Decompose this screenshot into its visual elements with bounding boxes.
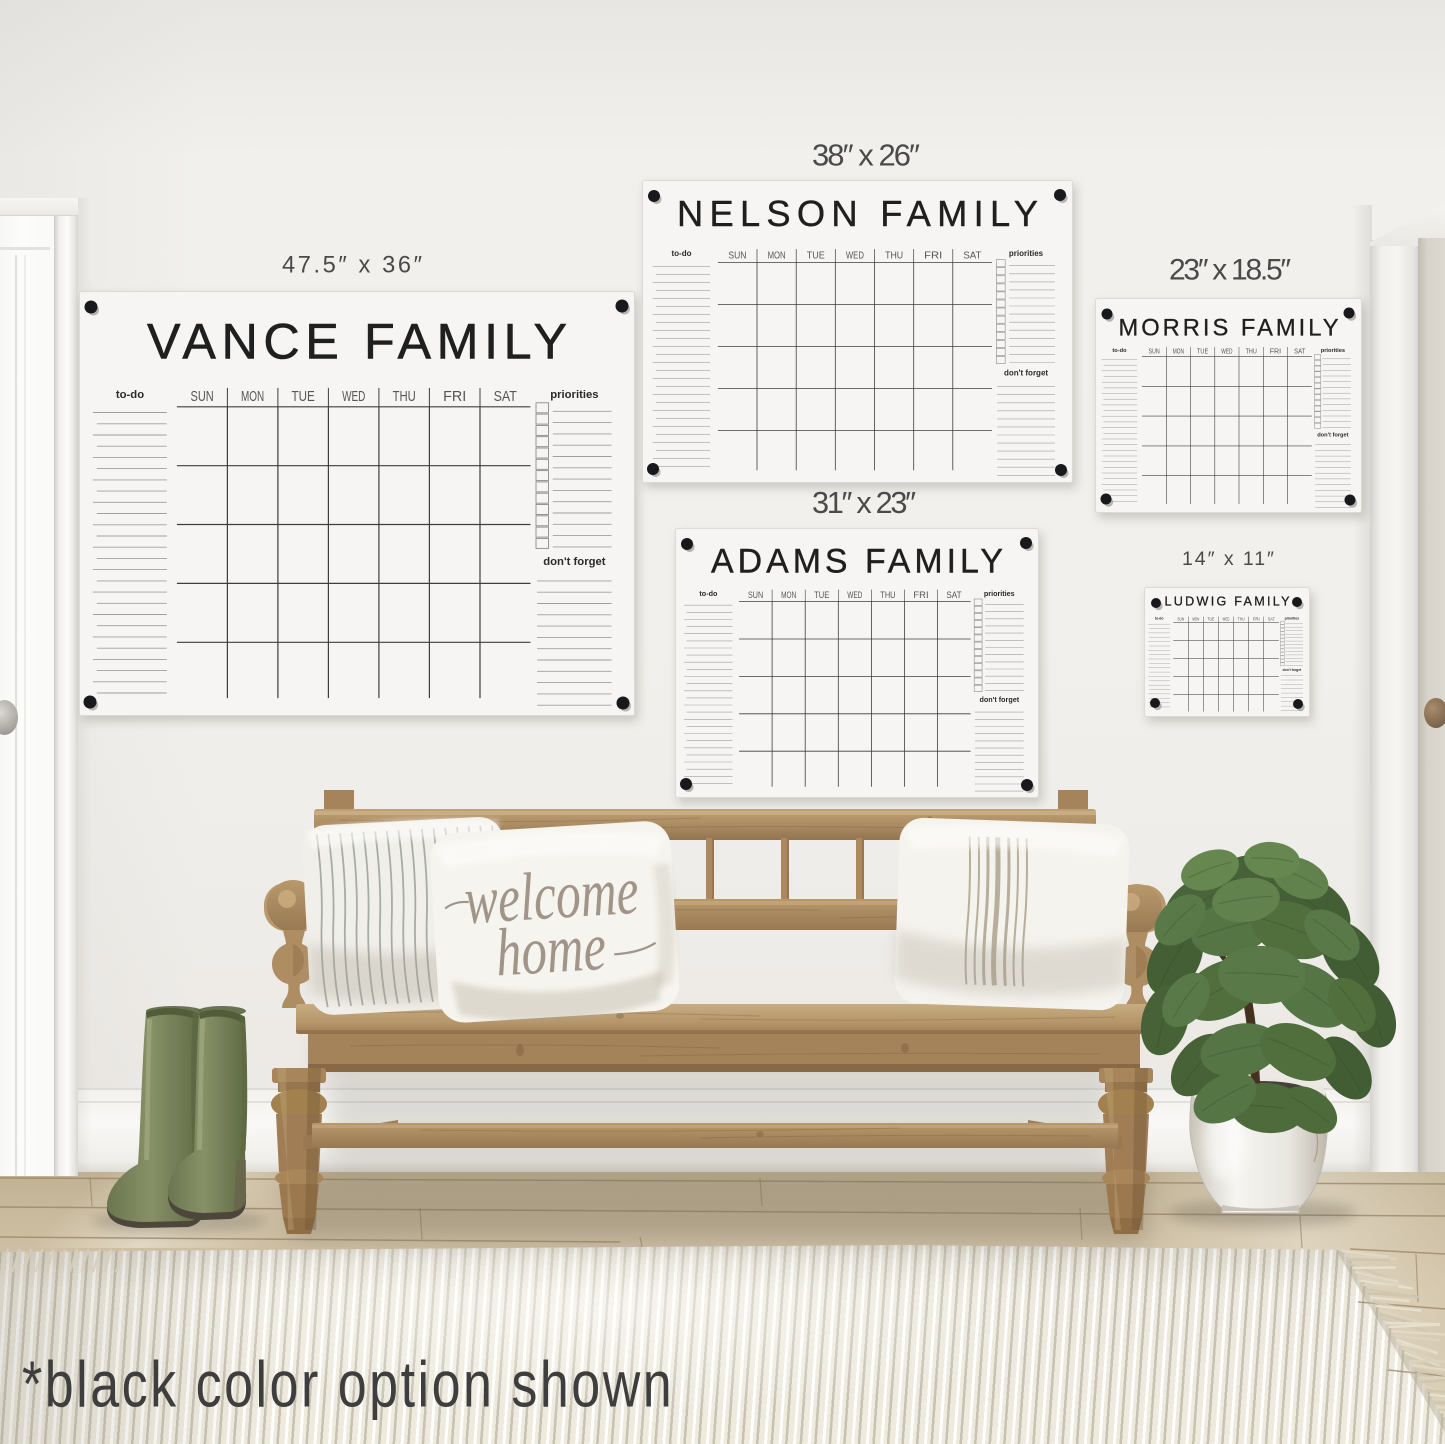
svg-text:home: home bbox=[494, 908, 608, 991]
